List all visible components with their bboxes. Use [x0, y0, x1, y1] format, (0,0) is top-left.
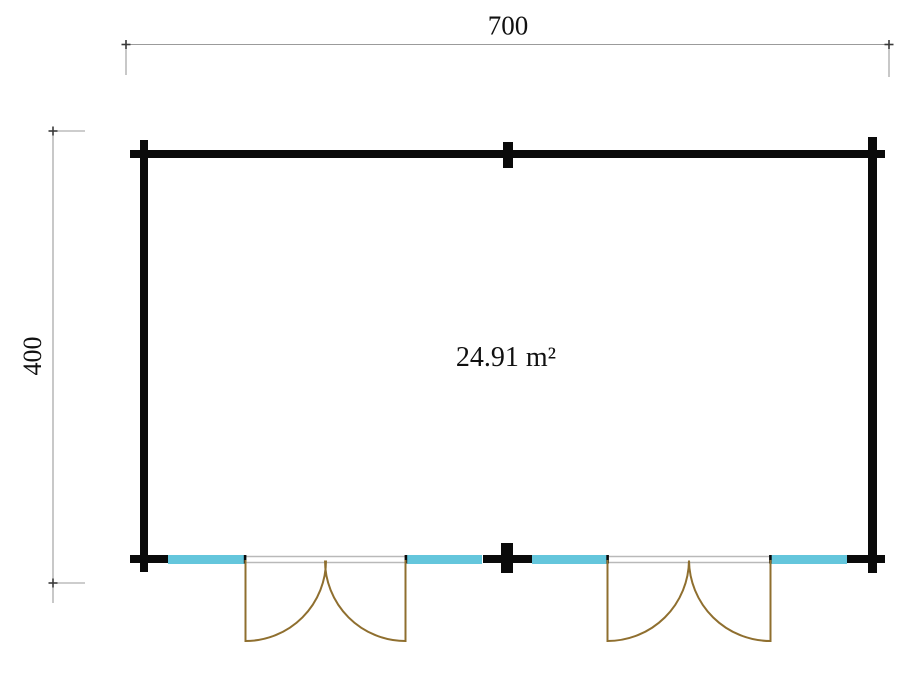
height-dimension-label: 400: [18, 337, 48, 376]
door-right-leaf-right-swing-arc: [689, 560, 771, 641]
wall-bottom-right-segment: [847, 555, 885, 563]
window-2: [407, 555, 482, 564]
width-dim-tick-right: [885, 40, 894, 49]
height-dim-tick-top: [49, 127, 58, 136]
double-door-right: [606, 555, 771, 641]
window-4: [771, 555, 847, 564]
door-right-leaf-left-swing-arc: [608, 560, 690, 641]
width-dim-tick-left: [122, 40, 131, 49]
door-left-leaf-left-swing-arc: [246, 560, 327, 641]
window-1: [168, 555, 245, 564]
wall-bottom-middle-tick: [501, 543, 513, 573]
width-dimension-line: [122, 40, 894, 77]
width-dimension-label: 700: [488, 11, 529, 42]
double-door-left: [244, 555, 407, 641]
height-dimension-line: [49, 127, 86, 604]
wall-right: [868, 137, 877, 573]
door-left-leaf-right-swing-arc: [325, 560, 406, 641]
wall-bottom-left-segment: [130, 555, 168, 563]
area-label: 24.91 m²: [456, 342, 556, 374]
height-dim-tick-bottom: [49, 579, 58, 588]
floor-plan-drawing: [0, 0, 911, 675]
wall-left: [140, 140, 148, 572]
floor-plan-canvas: 700 400 24.91 m²: [0, 0, 911, 675]
wall-top-middle-tick: [503, 142, 513, 168]
window-3: [532, 555, 607, 564]
